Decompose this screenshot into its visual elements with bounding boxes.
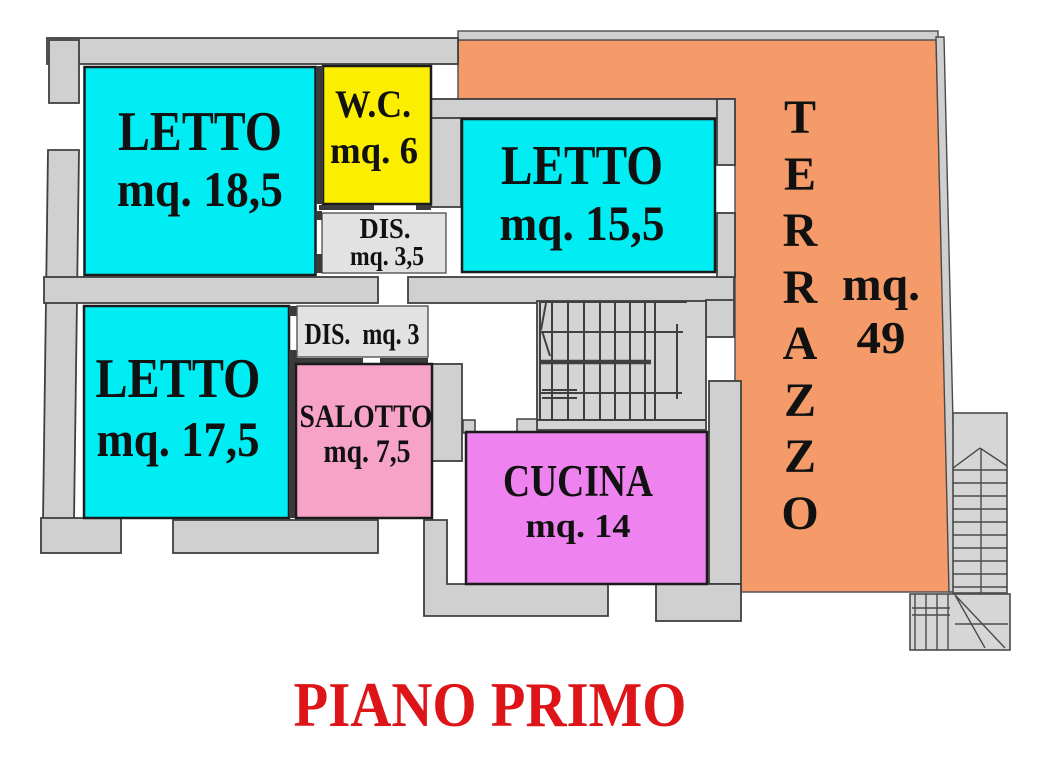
svg-text:O: O xyxy=(781,487,818,540)
svg-text:PIANO PRIMO: PIANO PRIMO xyxy=(294,669,687,740)
svg-text:mq. 15,5: mq. 15,5 xyxy=(500,195,665,251)
svg-text:Z: Z xyxy=(784,430,816,483)
svg-text:W.C.: W.C. xyxy=(335,83,411,126)
svg-text:mq. 17,5: mq. 17,5 xyxy=(97,411,260,467)
svg-text:mq. 7,5: mq. 7,5 xyxy=(324,434,411,470)
svg-text:mq.: mq. xyxy=(842,258,920,311)
svg-text:mq. 18,5: mq. 18,5 xyxy=(117,161,283,217)
svg-text:LETTO: LETTO xyxy=(501,135,663,197)
svg-text:E: E xyxy=(784,148,816,201)
svg-text:mq. 14: mq. 14 xyxy=(526,508,631,545)
svg-text:A: A xyxy=(783,317,818,370)
svg-text:SALOTTO: SALOTTO xyxy=(300,399,433,435)
svg-text:LETTO: LETTO xyxy=(96,348,261,410)
svg-text:R: R xyxy=(783,261,819,314)
svg-text:DIS. mq. 3: DIS. mq. 3 xyxy=(305,316,420,351)
svg-text:CUCINA: CUCINA xyxy=(503,456,653,506)
svg-text:49: 49 xyxy=(857,312,906,363)
svg-text:mq. 6: mq. 6 xyxy=(330,130,418,172)
svg-text:mq. 3,5: mq. 3,5 xyxy=(350,241,424,271)
svg-text:Z: Z xyxy=(784,374,816,427)
svg-text:R: R xyxy=(783,204,819,257)
svg-text:T: T xyxy=(784,91,816,144)
svg-text:LETTO: LETTO xyxy=(118,101,282,163)
